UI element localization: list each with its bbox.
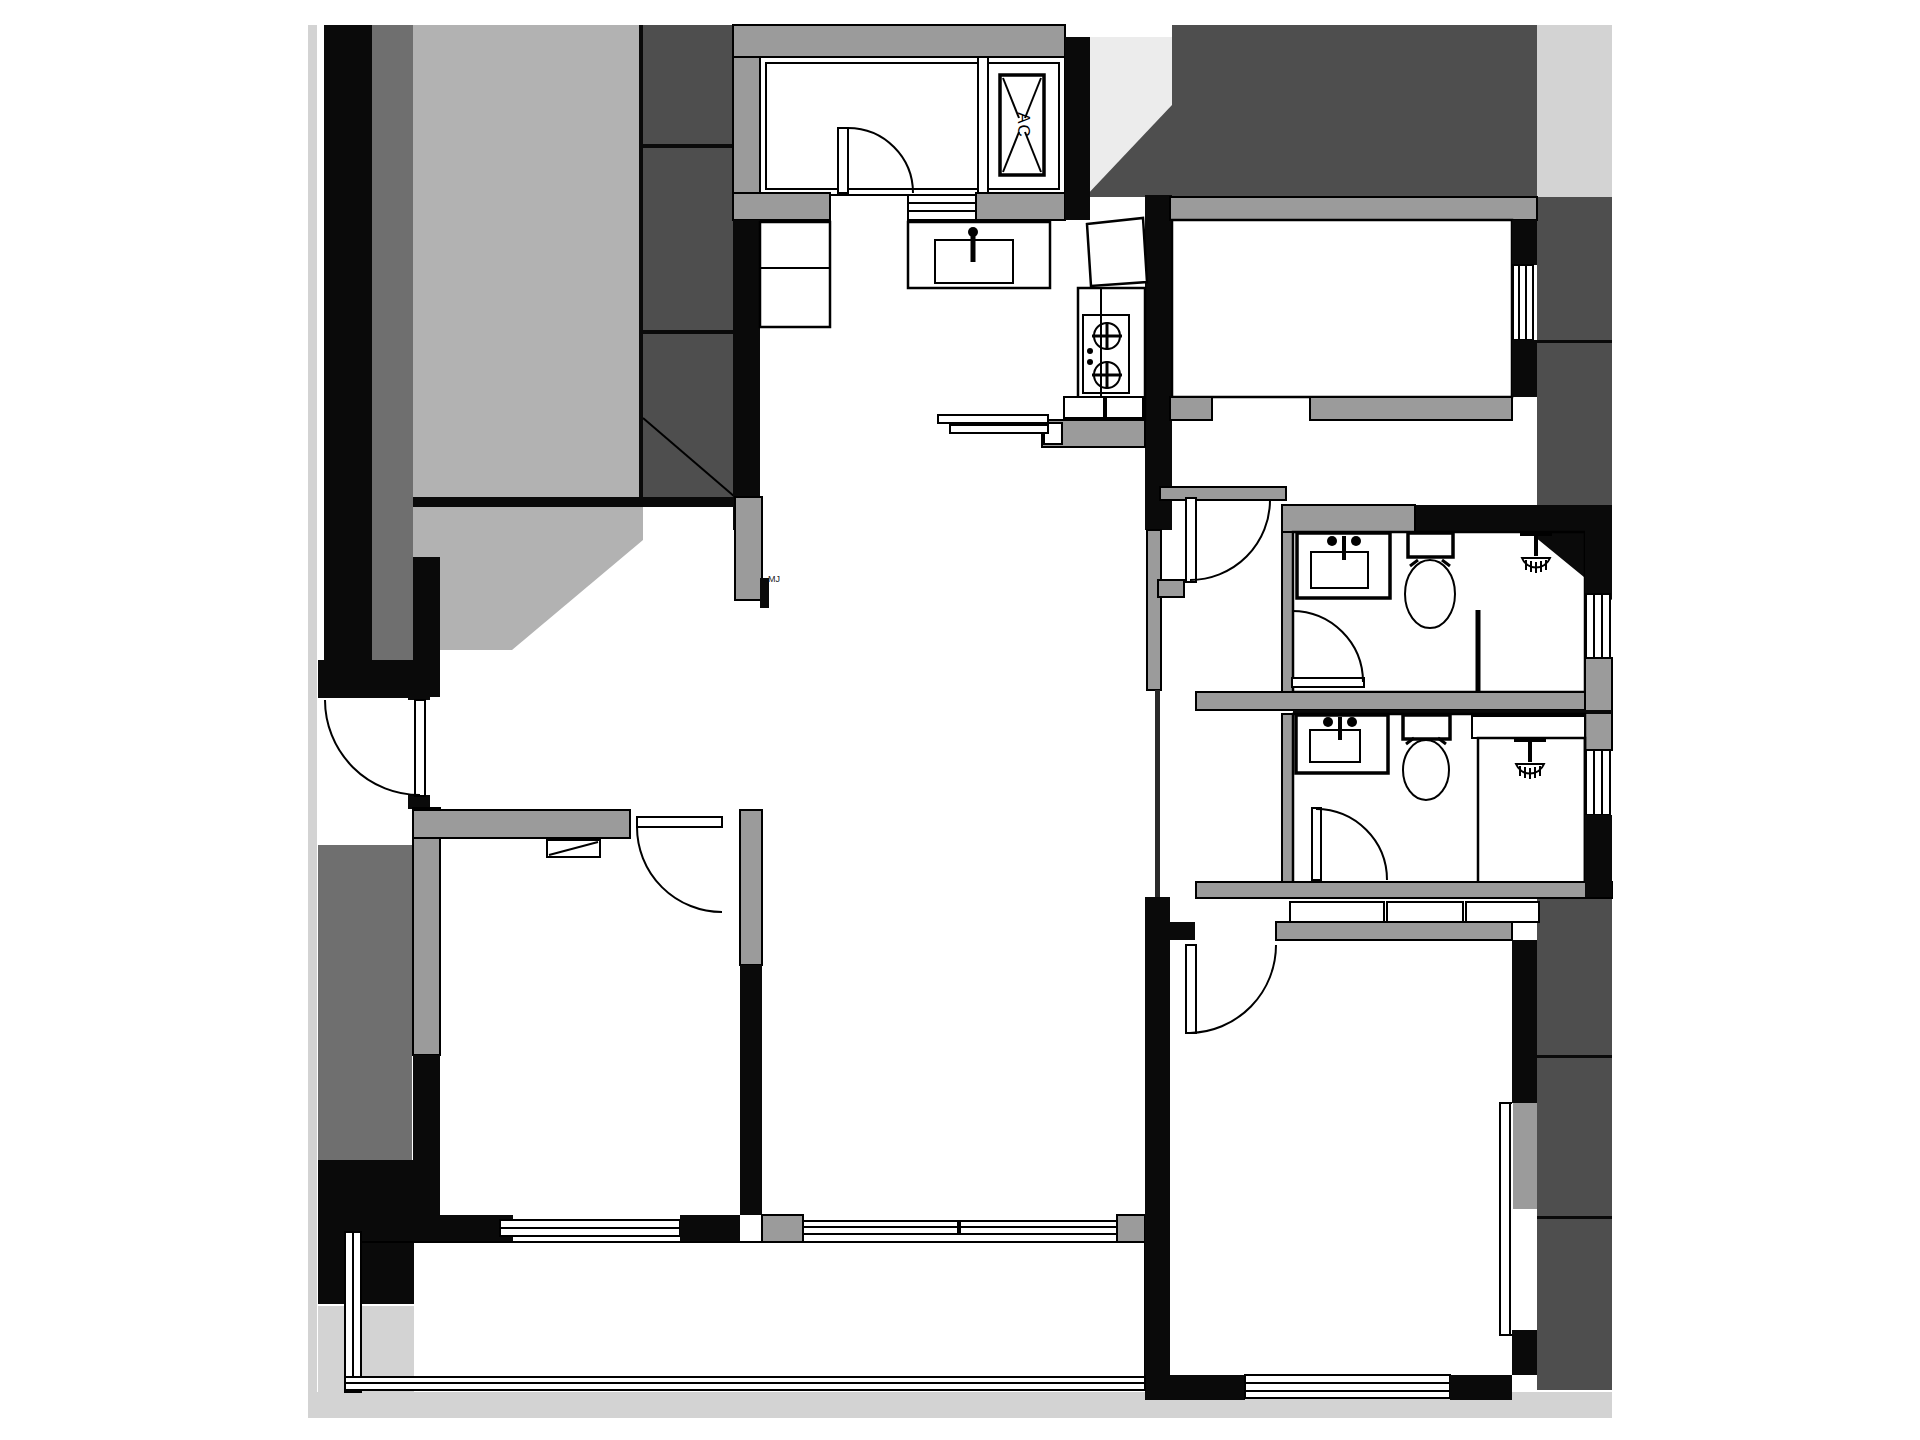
sliding-window-icon — [1513, 265, 1533, 340]
sliding-panel — [950, 425, 1048, 433]
right-wall-black — [740, 965, 762, 1215]
wardrobe-cell — [1387, 902, 1463, 922]
door-swing-icon — [1190, 945, 1276, 1033]
toilet-tank — [1403, 715, 1450, 739]
bedroom-door — [1186, 945, 1276, 1033]
bottom-wall — [1196, 882, 1612, 898]
door-leaf — [1186, 945, 1196, 1033]
topleft-dark-column — [643, 25, 735, 418]
topright-dark-block — [1172, 25, 1537, 197]
column-divider — [643, 144, 735, 148]
hall-side-wall — [1147, 530, 1161, 690]
bottom-wall-left — [413, 1215, 513, 1242]
sink-counter — [908, 222, 1050, 288]
kitchen-sink-icon — [908, 222, 1050, 288]
door-swing-icon — [1316, 809, 1387, 880]
sliding-window-icon — [500, 1220, 680, 1236]
tap-dot — [1347, 717, 1357, 727]
right-wall-black-lower — [1512, 340, 1537, 397]
toilet-bowl — [1405, 560, 1455, 628]
wall-above-door — [413, 557, 440, 697]
ac-closet-right-wall — [1065, 37, 1090, 220]
bottom-wall-right — [1450, 1375, 1512, 1400]
column-divider — [1537, 340, 1612, 343]
door-leaf — [415, 700, 425, 796]
column-edge — [639, 25, 643, 497]
bottom-wall-left — [1170, 1375, 1245, 1400]
toilet-icon — [1405, 533, 1455, 628]
column-divider — [1537, 1216, 1612, 1219]
wardrobe-icon — [1064, 397, 1143, 418]
floor-plan-canvas: AC — [0, 0, 1920, 1440]
left-wall — [1282, 714, 1293, 884]
door-leaf — [1312, 808, 1321, 880]
topleft-light-block — [413, 25, 643, 497]
balcony-floor-line — [361, 1242, 1145, 1377]
top-wall — [413, 810, 630, 838]
right-dark-3 — [1537, 897, 1612, 1055]
door-jamb — [408, 687, 430, 700]
right-wall-gray — [740, 810, 762, 965]
toilet-bowl — [1403, 740, 1449, 800]
top-service-balcony: AC — [733, 25, 1090, 220]
wall-nub — [1158, 580, 1184, 597]
shaft-label: MJ — [768, 574, 780, 584]
door-swing-icon — [637, 827, 722, 912]
sliding-panel — [938, 415, 1048, 423]
bathroom2-door — [1312, 808, 1387, 880]
bottom-wall-right — [1310, 397, 1512, 420]
top-wall — [733, 25, 1065, 57]
window-frame — [1586, 594, 1610, 658]
cabinet-box — [1106, 397, 1143, 418]
tap-dot — [1323, 717, 1333, 727]
right-wall-lower — [1512, 1330, 1537, 1375]
bottom-wall-left — [1170, 397, 1212, 420]
window-panel — [1500, 1103, 1510, 1335]
right-wall-black-upper — [1512, 220, 1537, 265]
vanity-sink-icon — [1297, 533, 1390, 598]
window-pier — [762, 1215, 803, 1242]
thin-wall-line — [1155, 690, 1160, 897]
bottom-wall-right — [680, 1215, 740, 1242]
window-frame — [1245, 1375, 1450, 1398]
column-divider — [1537, 1055, 1612, 1058]
left-wall-black — [413, 1055, 440, 1240]
balcony — [345, 1232, 1145, 1392]
bottomleft-black — [318, 1240, 414, 1304]
left-wall — [733, 57, 760, 197]
topleft-light-chamfer — [413, 507, 643, 650]
window-pier — [1117, 1215, 1145, 1242]
floor-plan-drawing: AC — [0, 0, 1920, 1440]
left-wall — [1145, 940, 1170, 1375]
left-mid-column — [318, 845, 412, 1160]
kitchen-counter-left — [760, 222, 830, 327]
wardrobe-icon — [1290, 902, 1539, 922]
closet-divider — [978, 57, 988, 195]
tap-dot — [1327, 536, 1337, 546]
door-leaf — [1292, 678, 1364, 687]
kitchen-cabinet — [1087, 218, 1147, 286]
wardrobe-cell — [1290, 902, 1384, 922]
window-frame — [1586, 750, 1610, 815]
left-edge-strip — [308, 25, 317, 1418]
bedroom-bottom-left — [413, 810, 762, 1242]
shower-shelf — [1472, 716, 1585, 738]
sliding-window-icon — [803, 1221, 1117, 1234]
toilet-tank — [1408, 533, 1453, 557]
right-wall-black — [1585, 815, 1612, 897]
kitchen-right-wall — [1145, 195, 1172, 530]
shower-head-icon — [1514, 740, 1546, 779]
top-wall-black — [1170, 922, 1195, 940]
kitchen-left-wall — [733, 220, 760, 530]
hall-door — [1186, 498, 1270, 582]
right-dark-5 — [1537, 1218, 1612, 1390]
ac-unit-icon: AC — [1000, 75, 1044, 175]
right-dark-2 — [1537, 342, 1612, 505]
corner-black — [1145, 897, 1170, 940]
tap-dot — [1351, 536, 1361, 546]
toilet-icon — [1403, 715, 1450, 800]
column-divider — [643, 330, 735, 334]
sliding-window-icon — [1245, 1375, 1450, 1398]
left-wall — [1282, 532, 1293, 692]
room-outline — [1172, 220, 1512, 397]
left-black-band — [324, 25, 372, 693]
top-wall-gray — [1276, 922, 1512, 940]
top-wall — [1282, 505, 1415, 532]
hall-wall — [1160, 487, 1286, 500]
knob — [1087, 348, 1093, 354]
door-leaf — [637, 817, 722, 827]
left-black-lower — [318, 1160, 413, 1240]
transom-window — [547, 840, 600, 857]
door-leaf — [838, 128, 848, 193]
shaft-wall — [735, 497, 762, 600]
entry-top-black — [318, 660, 413, 698]
right-wall-gray — [1585, 658, 1612, 750]
bottom-wall-right — [976, 193, 1065, 220]
left-wall-gray — [413, 808, 440, 1055]
bottom-wall-left — [733, 193, 830, 220]
right-dark-1 — [1537, 197, 1612, 340]
window-frame — [1513, 265, 1533, 340]
topright-light-block — [1537, 25, 1612, 197]
bath-hallway — [1145, 487, 1286, 940]
sliding-window-icon — [908, 195, 978, 220]
right-wall-black — [1585, 530, 1612, 594]
sliding-window-icon — [1586, 750, 1610, 815]
door-leaf — [1186, 498, 1196, 582]
topleft-black-line — [413, 497, 735, 507]
bedroom-bottom-right — [1145, 902, 1539, 1400]
cabinet-box — [1064, 397, 1104, 418]
left-mid-band — [372, 25, 413, 697]
door-swing-icon — [325, 700, 420, 795]
bedroom-door — [637, 817, 722, 912]
knob — [1087, 359, 1093, 365]
bathroom1-door — [1292, 611, 1364, 687]
door-swing-icon — [1292, 611, 1363, 682]
top-wall — [1170, 197, 1537, 220]
right-dark-4 — [1537, 1057, 1612, 1216]
floor-window — [1500, 1103, 1512, 1335]
window-frame — [908, 195, 978, 220]
vanity-sink-icon — [1296, 715, 1388, 773]
right-wall-upper — [1512, 940, 1537, 1103]
bathroom-2 — [1196, 710, 1612, 898]
living-room-south — [345, 1215, 1145, 1392]
door-swing-icon — [1190, 500, 1270, 580]
bottom-wall — [1196, 692, 1612, 710]
wardrobe-cell — [1466, 902, 1539, 922]
kitchen-sliding-door — [938, 415, 1048, 433]
sliding-window-icon — [1586, 594, 1610, 658]
entry-door — [325, 700, 425, 796]
ac-label: AC — [1014, 112, 1033, 138]
door-jamb — [408, 795, 430, 809]
